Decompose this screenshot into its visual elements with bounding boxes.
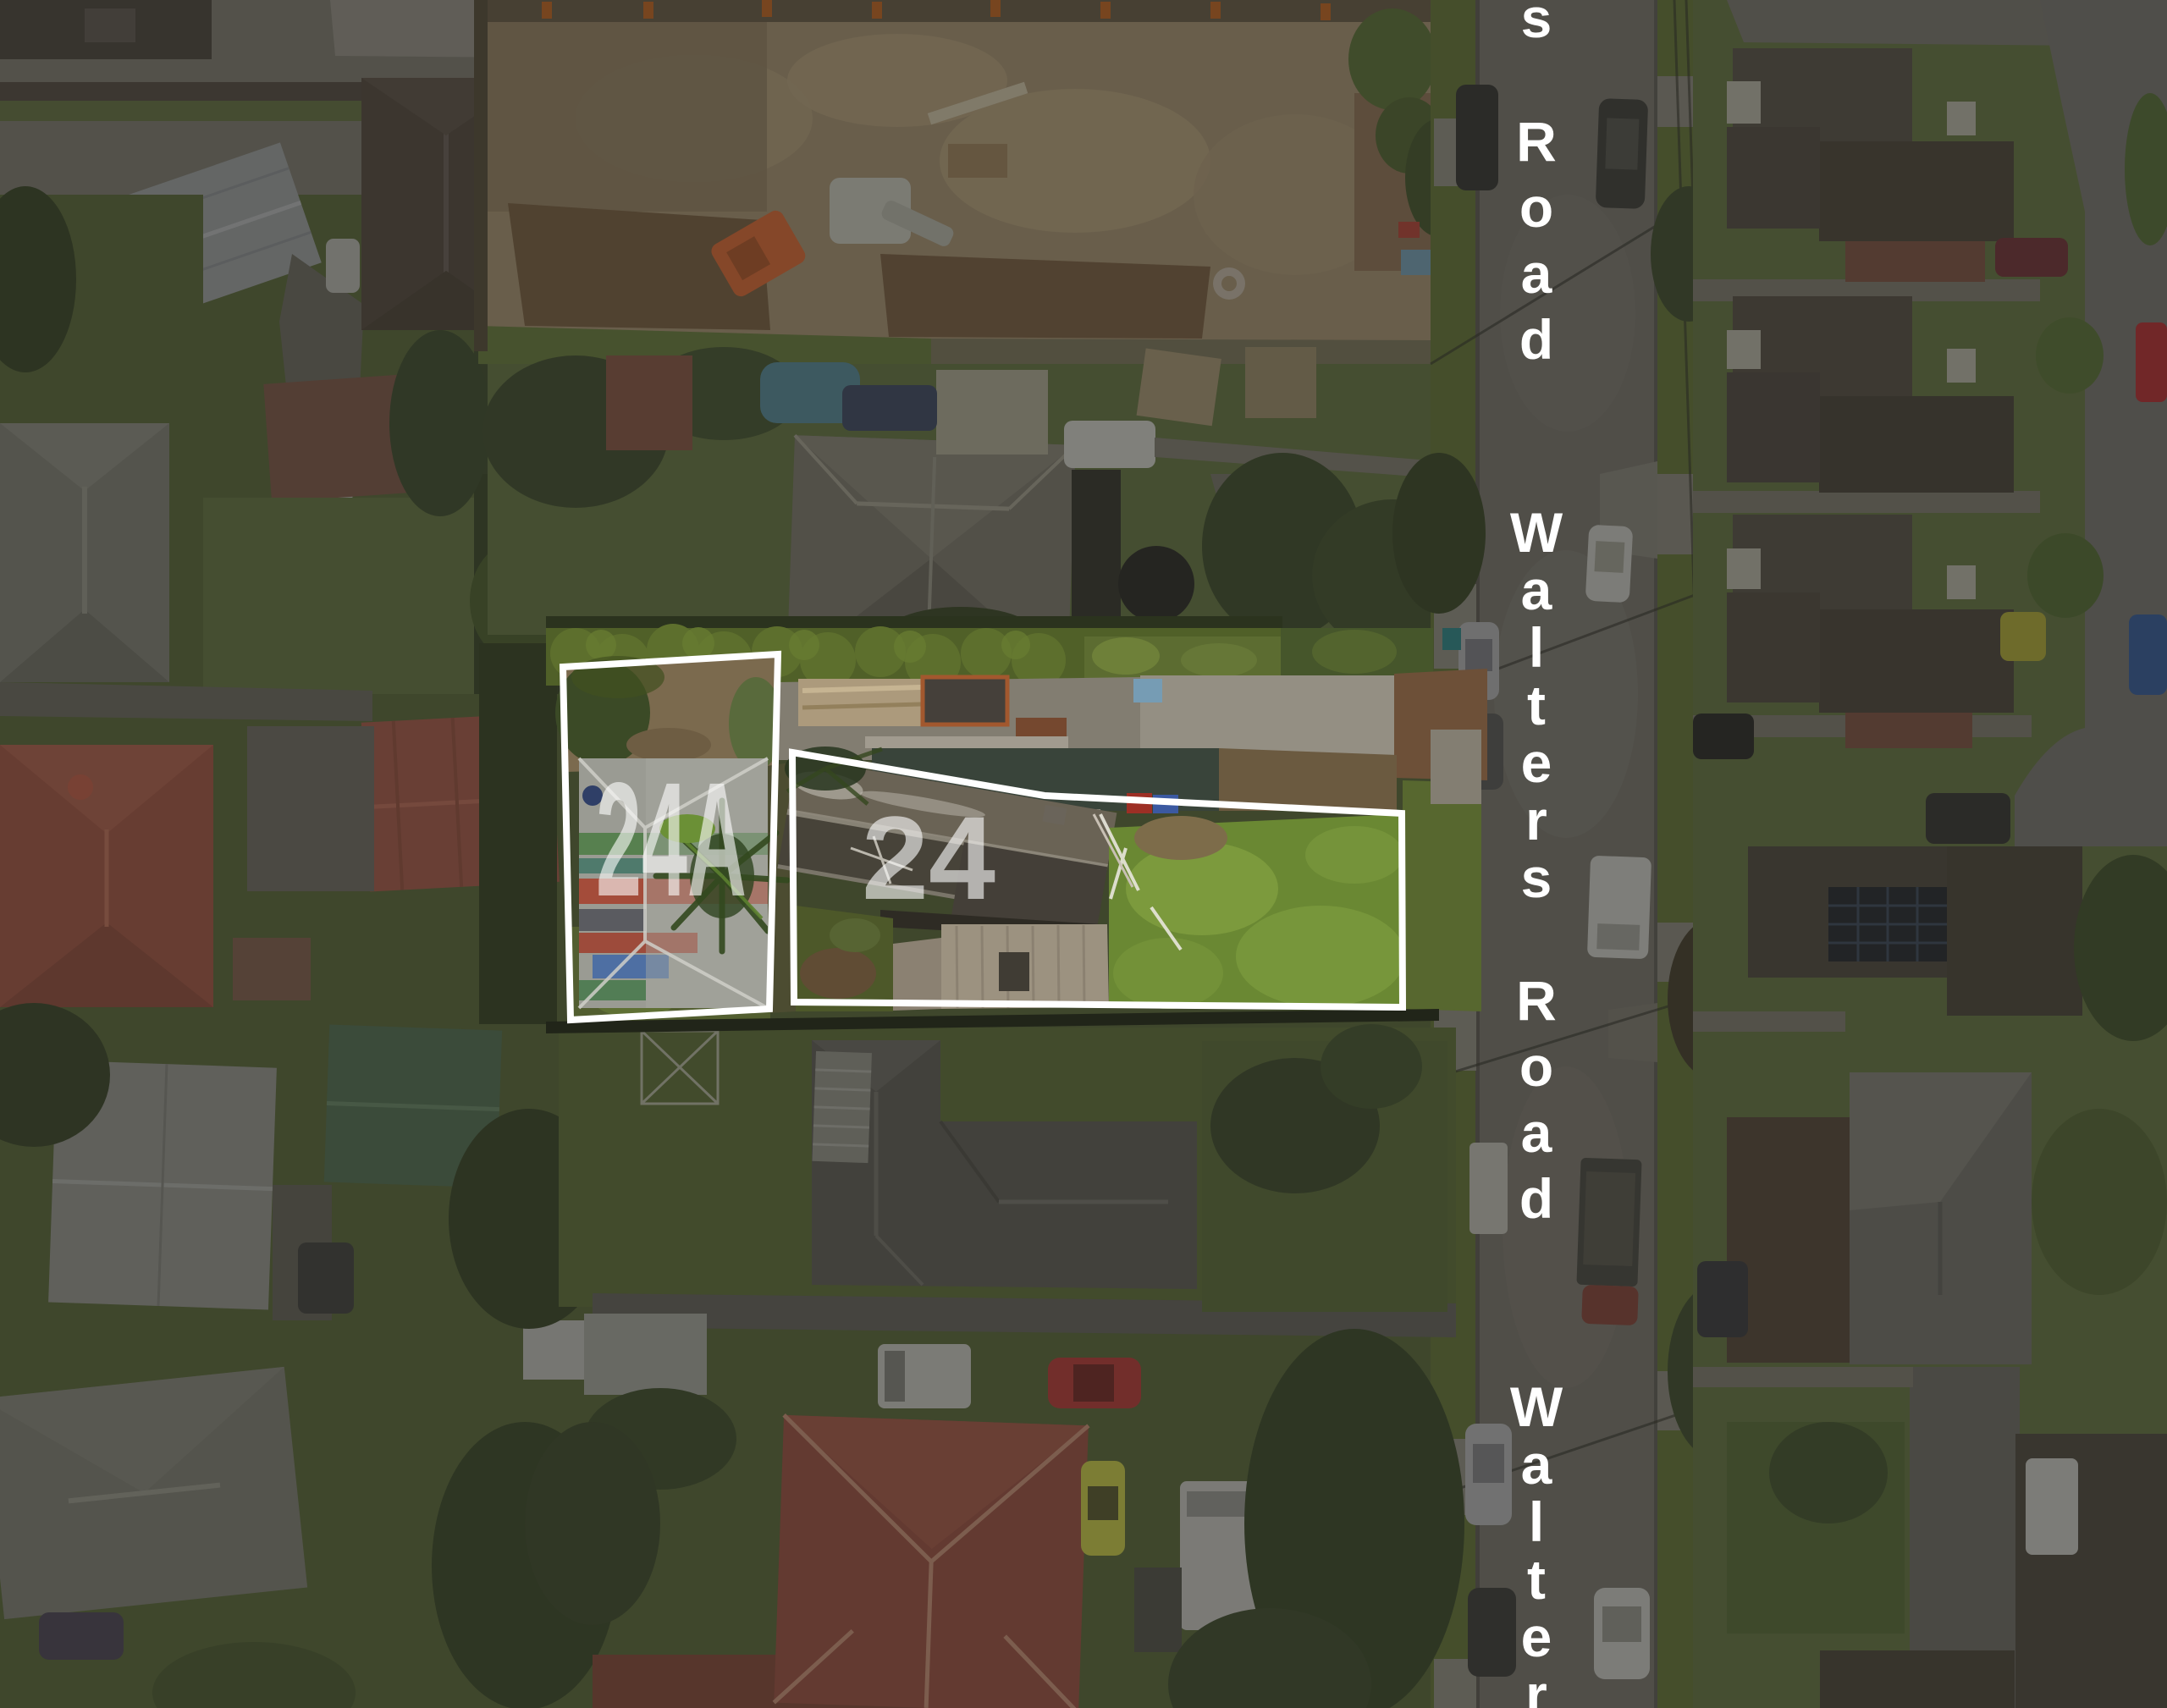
svg-text:W: W	[1510, 501, 1563, 564]
svg-text:s: s	[1521, 846, 1552, 909]
svg-text:o: o	[1519, 176, 1553, 239]
svg-text:R: R	[1516, 969, 1557, 1032]
svg-text:r: r	[1525, 1663, 1547, 1708]
svg-text:t: t	[1527, 1548, 1546, 1611]
svg-text:r: r	[1525, 789, 1547, 851]
svg-text:t: t	[1527, 674, 1546, 736]
svg-text:e: e	[1521, 731, 1552, 794]
svg-text:l: l	[1529, 1490, 1544, 1553]
svg-text:R: R	[1516, 110, 1557, 173]
svg-text:e: e	[1521, 1606, 1552, 1668]
svg-text:d: d	[1519, 308, 1553, 371]
svg-text:a: a	[1521, 559, 1553, 621]
svg-text:s: s	[1521, 0, 1552, 49]
svg-text:W: W	[1510, 1375, 1563, 1438]
svg-text:l: l	[1529, 616, 1544, 679]
svg-text:a: a	[1521, 242, 1553, 305]
svg-text:o: o	[1519, 1035, 1553, 1098]
svg-text:24A: 24A	[596, 748, 747, 930]
svg-text:a: a	[1521, 1101, 1553, 1164]
svg-text:d: d	[1519, 1167, 1553, 1230]
svg-text:a: a	[1521, 1433, 1553, 1496]
svg-text:24: 24	[862, 791, 995, 924]
